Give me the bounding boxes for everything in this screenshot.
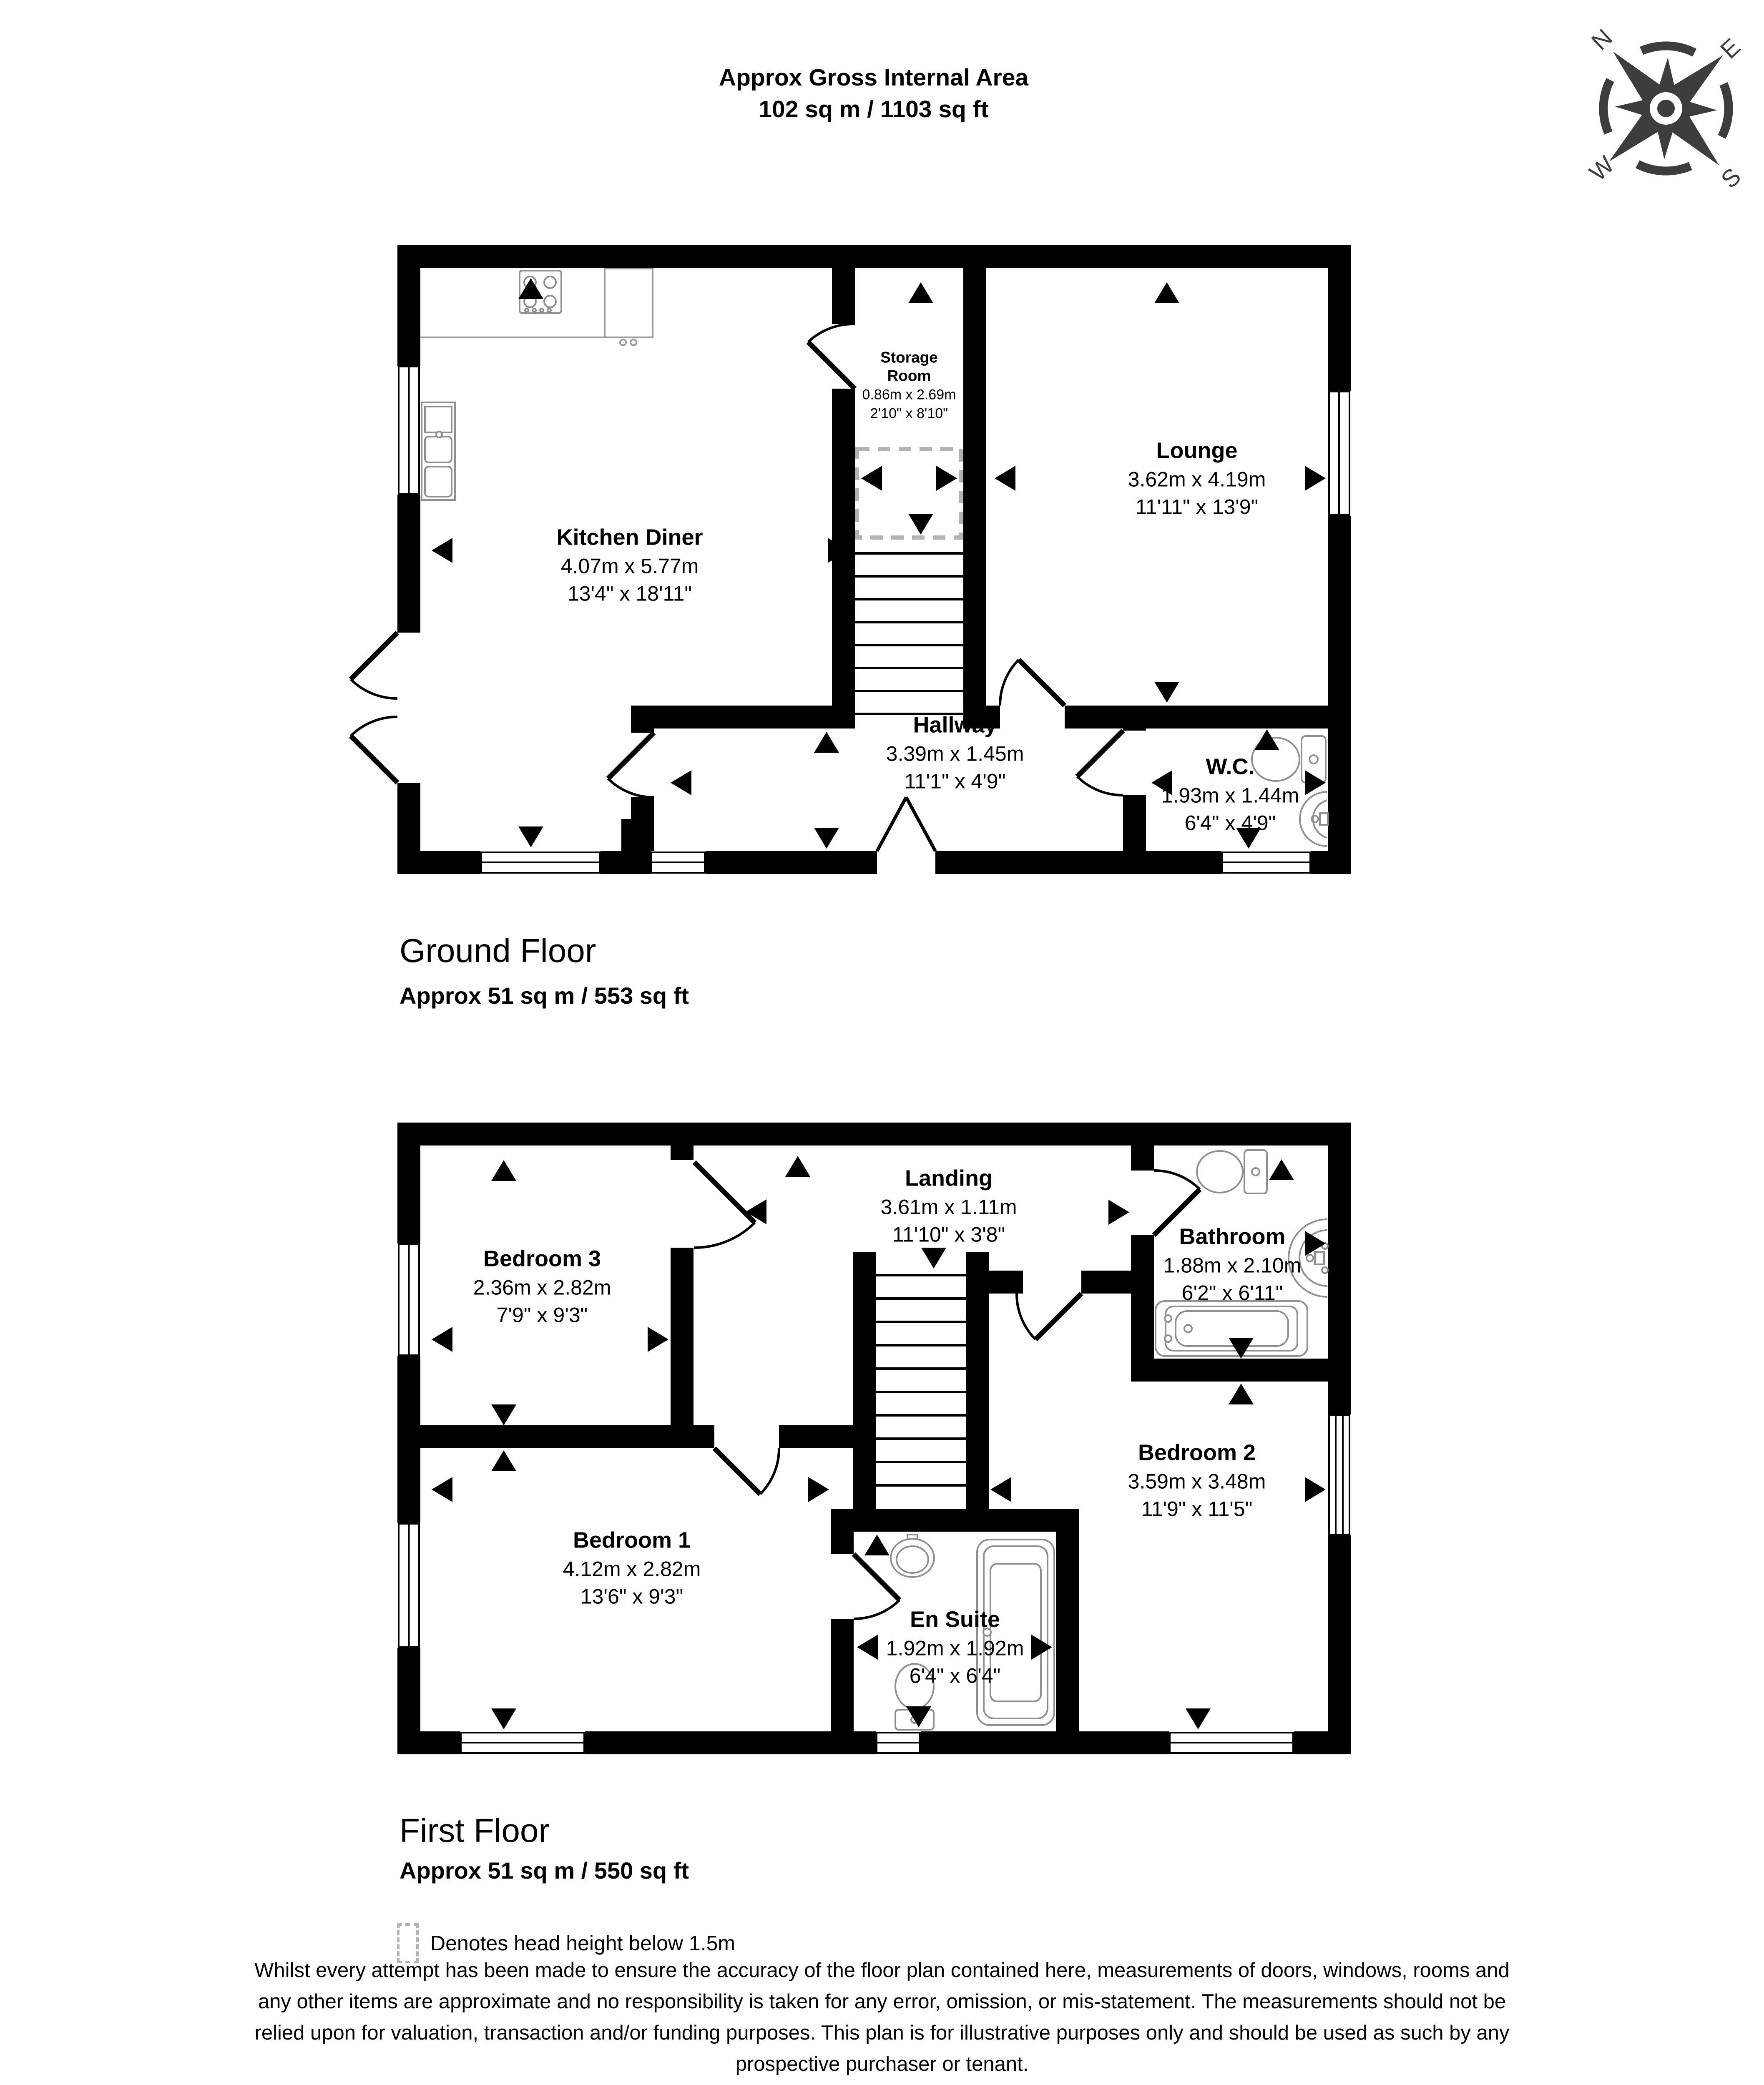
- disclaimer-line: any other items are approximate and no r…: [254, 1986, 1510, 2017]
- disclaimer-text: Whilst every attempt has been made to en…: [254, 1955, 1510, 2080]
- stairs: [876, 1275, 966, 1485]
- room-size-metric: 1.93m x 1.44m: [1161, 782, 1299, 809]
- room-size-metric: 0.86m x 2.69m: [862, 386, 956, 404]
- room-size-metric: 3.39m x 1.45m: [886, 740, 1024, 768]
- room-size-metric: 4.07m x 5.77m: [556, 553, 703, 580]
- room-name: Storage Room: [865, 349, 953, 386]
- ground-floor-area: Approx 51 sq m / 553 sq ft: [400, 984, 689, 1007]
- room-size-imperial: 6'4" x 6'4": [886, 1662, 1024, 1690]
- ground-floor-title: Ground Floor: [400, 934, 596, 967]
- room-size-metric: 3.61m x 1.11m: [880, 1193, 1017, 1221]
- room-size-imperial: 2'10" x 8'10": [862, 404, 956, 423]
- bath-icon: [1156, 1301, 1307, 1356]
- room-size-imperial: 11'11" x 13'9": [1128, 493, 1266, 521]
- disclaimer-line: prospective purchaser or tenant.: [254, 2049, 1510, 2080]
- room-label-hallway: Hallway 3.39m x 1.45m 11'1" x 4'9": [886, 710, 1024, 795]
- room-size-imperial: 11'1" x 4'9": [886, 768, 1024, 795]
- room-label-wc: W.C. 1.93m x 1.44m 6'4" x 4'9": [1161, 752, 1299, 837]
- room-size-imperial: 7'9" x 9'3": [473, 1301, 611, 1329]
- room-size-metric: 1.92m x 1.92m: [886, 1635, 1024, 1662]
- head-height-legend-text: Denotes head height below 1.5m: [430, 1931, 735, 1955]
- room-label-landing: Landing 3.61m x 1.11m 11'10" x 3'8": [880, 1163, 1017, 1248]
- room-label-bedroom-1: Bedroom 1 4.12m x 2.82m 13'6" x 9'3": [563, 1525, 701, 1610]
- room-size-metric: 1.88m x 2.10m: [1163, 1252, 1302, 1279]
- head-height-area: [857, 449, 961, 538]
- room-name: Bedroom 3: [473, 1244, 611, 1274]
- disclaimer-line: Whilst every attempt has been made to en…: [254, 1955, 1510, 1986]
- room-label-bedroom-2: Bedroom 2 3.59m x 3.48m 11'9" x 11'5": [1128, 1438, 1266, 1522]
- room-name: Bedroom 2: [1128, 1438, 1266, 1467]
- room-label-bathroom: Bathroom 1.88m x 2.10m 6'2" x 6'11": [1163, 1222, 1302, 1306]
- room-size-imperial: 6'4" x 4'9": [1161, 809, 1299, 837]
- sink-icon: [1300, 792, 1328, 846]
- compass-north-label: N: [1586, 24, 1618, 55]
- room-label-storage-room: Storage Room 0.86m x 2.69m 2'10" x 8'10": [862, 349, 956, 423]
- toilet-icon: [1197, 1150, 1267, 1193]
- compass-icon: N E S W: [1572, 15, 1760, 206]
- room-label-en-suite: En Suite 1.92m x 1.92m 6'4" x 6'4": [886, 1605, 1024, 1689]
- kitchen-sink-icon: [422, 402, 455, 500]
- floorplan-page: Approx Gross Internal Area 102 sq m / 11…: [0, 0, 1764, 2085]
- room-size-imperial: 11'9" x 11'5": [1128, 1495, 1266, 1523]
- room-name: Bathroom: [1163, 1222, 1302, 1251]
- header-line1: Approx Gross Internal Area: [719, 62, 1028, 93]
- room-name: Hallway: [886, 710, 1024, 740]
- room-name: Landing: [880, 1163, 1017, 1193]
- room-label-bedroom-3: Bedroom 3 2.36m x 2.82m 7'9" x 9'3": [473, 1244, 611, 1329]
- room-size-metric: 2.36m x 2.82m: [473, 1274, 611, 1301]
- room-name: Kitchen Diner: [556, 523, 703, 552]
- disclaimer-line: relied upon for valuation, transaction a…: [254, 2017, 1510, 2049]
- sink-icon: [891, 1535, 934, 1577]
- stairs: [855, 553, 963, 714]
- compass-south-label: S: [1716, 163, 1746, 193]
- room-name: W.C.: [1161, 752, 1299, 781]
- room-size-imperial: 13'6" x 9'3": [563, 1583, 701, 1610]
- header-line2: 102 sq m / 1103 sq ft: [719, 93, 1028, 125]
- room-size-metric: 4.12m x 2.82m: [563, 1555, 701, 1583]
- room-size-metric: 3.59m x 3.48m: [1128, 1468, 1266, 1495]
- room-name: Bedroom 1: [563, 1525, 701, 1555]
- room-name: Lounge: [1128, 436, 1266, 465]
- room-size-imperial: 11'10" x 3'8": [880, 1221, 1017, 1248]
- room-name: En Suite: [886, 1605, 1024, 1634]
- room-size-imperial: 13'4" x 18'11": [556, 580, 703, 608]
- room-label-kitchen-diner: Kitchen Diner 4.07m x 5.77m 13'4" x 18'1…: [556, 523, 703, 607]
- room-size-metric: 3.62m x 4.19m: [1128, 466, 1266, 493]
- first-floor-area: Approx 51 sq m / 550 sq ft: [400, 1859, 689, 1882]
- gross-internal-area-header: Approx Gross Internal Area 102 sq m / 11…: [719, 62, 1028, 125]
- first-floor-title: First Floor: [400, 1814, 550, 1847]
- room-label-lounge: Lounge 3.62m x 4.19m 11'11" x 13'9": [1128, 436, 1266, 520]
- room-size-imperial: 6'2" x 6'11": [1163, 1279, 1302, 1307]
